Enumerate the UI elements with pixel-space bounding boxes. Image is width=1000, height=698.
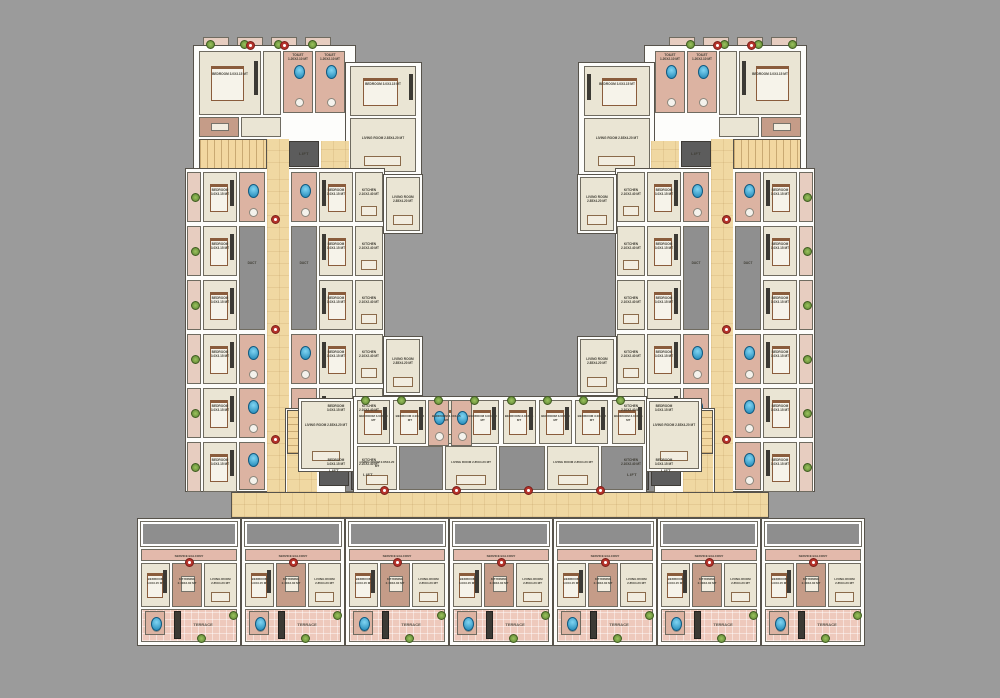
duct-void: DUCT bbox=[291, 226, 317, 330]
roof-cutout bbox=[453, 522, 549, 546]
entry-marker bbox=[246, 41, 255, 50]
entry-marker bbox=[747, 41, 756, 50]
bottom-row-unit: SERVICE BALCONY BEDROOM 3.0X3.15 MT KIT/… bbox=[345, 518, 449, 646]
roof-cutout bbox=[765, 522, 861, 546]
room-bedroom: BEDROOM 3.0X3.15 MT bbox=[647, 280, 681, 330]
room-living: LIVING ROOM 2.85X4.20 MT bbox=[412, 563, 445, 607]
room-bedroom: BEDROOM 3.0X3.15 MT bbox=[763, 280, 797, 330]
room-living: LIVING ROOM 2.85X4.20 MT bbox=[308, 563, 341, 607]
room-bedroom: BEDROOM 3.0X3.15 MT bbox=[319, 334, 353, 384]
bottom-row: SERVICE BALCONY BEDROOM 3.0X3.15 MT KIT/… bbox=[137, 518, 865, 646]
room-living: LIVING ROOM 2.85X4.20 MT bbox=[828, 563, 861, 607]
room-kitchen-living: KITCHEN 2.10X2.40 MT bbox=[617, 172, 645, 222]
room-living: LIVING ROOM 2.85X4.20 MT bbox=[386, 177, 420, 231]
toilet bbox=[735, 442, 761, 490]
plant-icon bbox=[749, 611, 758, 620]
toilet bbox=[353, 611, 373, 635]
room-kitchen-dining: KIT/DINING 2.40X3.30 MT bbox=[380, 563, 410, 607]
plant-icon bbox=[191, 355, 200, 364]
room-bedroom: BEDROOM 3.0X3.15 MT bbox=[763, 172, 797, 222]
room-kitchen bbox=[761, 117, 801, 137]
room-kitchen-dining: KIT/DINING 2.40X3.30 MT bbox=[588, 563, 618, 607]
room-bedroom: BEDROOM 3.0X3.15 MT bbox=[647, 172, 681, 222]
room-kitchen bbox=[199, 117, 239, 137]
entry-marker bbox=[722, 435, 731, 444]
room-bedroom: BEDROOM 3.0X3.15 MT bbox=[612, 400, 645, 444]
plant-icon bbox=[543, 396, 552, 405]
toilet bbox=[451, 400, 472, 446]
room-bedroom: BEDROOM 3.0X3.15 MT bbox=[765, 563, 794, 607]
balcony bbox=[187, 172, 201, 222]
entry-marker bbox=[722, 325, 731, 334]
plant-icon bbox=[191, 193, 200, 202]
room-bedroom: BEDROOM 3.0X3.15 MT bbox=[203, 172, 237, 222]
kitchen-counter bbox=[382, 611, 389, 639]
entry-marker bbox=[705, 558, 714, 567]
bottom-row-unit: SERVICE BALCONY BEDROOM 3.0X3.15 MT KIT/… bbox=[761, 518, 865, 646]
room-bedroom: BEDROOM 3.0X3.15 MT bbox=[203, 442, 237, 492]
plant-icon bbox=[803, 247, 812, 256]
roof-cutout bbox=[557, 522, 653, 546]
room-kitchen-living: KITCHEN 2.10X2.40 MT bbox=[617, 226, 645, 276]
room-bedroom: BEDROOM 3.0X3.15 MT bbox=[647, 334, 681, 384]
entry-marker bbox=[596, 486, 605, 495]
duct-void: DUCT bbox=[239, 226, 265, 330]
room bbox=[241, 117, 281, 137]
plant-icon bbox=[437, 611, 446, 620]
room-bedroom: BEDROOM 3.0X3.15 MT bbox=[141, 563, 170, 607]
plant-icon bbox=[803, 193, 812, 202]
kitchen-counter bbox=[486, 611, 493, 639]
entry-marker bbox=[380, 486, 389, 495]
room-kitchen-living: KITCHEN 2.10X2.40 MT bbox=[355, 172, 383, 222]
toilet: TOILET 1.20X2.10 MT bbox=[655, 51, 685, 113]
plant-icon bbox=[308, 40, 317, 49]
room-bedroom: BEDROOM 3.0X3.15 MT bbox=[575, 400, 608, 444]
plant-icon bbox=[616, 396, 625, 405]
plant-icon bbox=[191, 409, 200, 418]
plant-icon bbox=[434, 396, 443, 405]
plant-icon bbox=[301, 634, 310, 643]
plant-icon bbox=[229, 611, 238, 620]
plant-icon bbox=[197, 634, 206, 643]
roof-cutout bbox=[141, 522, 237, 546]
plant-icon bbox=[361, 396, 370, 405]
kitchen-counter bbox=[798, 611, 805, 639]
toilet bbox=[239, 442, 265, 490]
duct-void bbox=[499, 446, 545, 490]
toilet bbox=[561, 611, 581, 635]
plant-icon bbox=[803, 409, 812, 418]
room-kitchen-dining: KIT/DINING 2.40X3.30 MT bbox=[692, 563, 722, 607]
room-kitchen-dining: KIT/DINING 2.40X3.30 MT bbox=[484, 563, 514, 607]
room-bedroom: BEDROOM 3.0X3.15 MT bbox=[357, 400, 390, 444]
balcony bbox=[187, 280, 201, 330]
room-bedroom: BEDROOM 3.0X3.15 MT bbox=[763, 388, 797, 438]
bottom-row-unit: SERVICE BALCONY BEDROOM 3.0X3.15 MT KIT/… bbox=[449, 518, 553, 646]
duct-void bbox=[399, 446, 443, 490]
entry-marker bbox=[289, 558, 298, 567]
floor-plan-canvas: BEDROOM 3.0X3.15 MT TOILET 1.20X2.10 MT … bbox=[0, 0, 1000, 698]
toilet bbox=[428, 400, 449, 446]
room-bedroom: BEDROOM 3.0X3.15 MT bbox=[203, 388, 237, 438]
room-bedroom: BEDROOM 3.0X3.15 MT bbox=[739, 51, 801, 115]
entry-marker bbox=[722, 215, 731, 224]
room-bedroom: BEDROOM 3.0X3.15 MT bbox=[203, 334, 237, 384]
plant-icon bbox=[191, 301, 200, 310]
entry-marker bbox=[271, 435, 280, 444]
toilet: TOILET 1.20X2.10 MT bbox=[687, 51, 717, 113]
room-bedroom: BEDROOM 3.0X3.15 MT bbox=[584, 66, 650, 116]
plant-icon bbox=[803, 355, 812, 364]
entry-marker bbox=[452, 486, 461, 495]
room-living: LIVING ROOM 2.85X4.20 MT bbox=[516, 563, 549, 607]
room-bedroom: BEDROOM 3.0X3.15 MT bbox=[763, 442, 797, 492]
room-kitchen-living: KITCHEN 2.10X2.40 MT bbox=[355, 226, 383, 276]
room-bedroom: BEDROOM 3.0X3.15 MT bbox=[203, 226, 237, 276]
room-bedroom: BEDROOM 3.0X3.15 MT bbox=[661, 563, 690, 607]
room-living: LIVING ROOM 2.85X4.20 MT bbox=[357, 446, 397, 490]
room-living: LIVING ROOM 2.85X4.20 MT bbox=[580, 177, 614, 231]
plant-icon bbox=[507, 396, 516, 405]
balcony bbox=[187, 442, 201, 492]
room-living: LIVING ROOM 2.85X4.20 MT bbox=[547, 446, 599, 490]
balcony bbox=[799, 226, 813, 276]
entry-marker bbox=[601, 558, 610, 567]
roof-cutout bbox=[349, 522, 445, 546]
toilet bbox=[683, 334, 709, 384]
room-bedroom: BEDROOM 3.0X3.15 MT bbox=[539, 400, 572, 444]
room-passage bbox=[719, 51, 737, 115]
room-living: LIVING ROOM 2.85X4.20 MT bbox=[580, 339, 614, 393]
room-bedroom: BEDROOM 3.0X3.15 MT bbox=[203, 280, 237, 330]
toilet bbox=[457, 611, 477, 635]
room-bedroom: BEDROOM 3.0X3.15 MT bbox=[319, 172, 353, 222]
toilet bbox=[291, 334, 317, 384]
entry-marker bbox=[524, 486, 533, 495]
toilet bbox=[769, 611, 789, 635]
plant-icon bbox=[613, 634, 622, 643]
toilet bbox=[735, 388, 761, 438]
balcony bbox=[799, 388, 813, 438]
room-living: LIVING ROOM 2.85X4.20 MT bbox=[649, 401, 699, 469]
balcony bbox=[799, 280, 813, 330]
room-kitchen-dining: KIT/DINING 2.40X3.30 MT bbox=[796, 563, 826, 607]
entry-marker bbox=[280, 41, 289, 50]
toilet: TOILET 1.20X2.10 MT bbox=[283, 51, 313, 113]
entry-marker bbox=[271, 215, 280, 224]
lift-shaft: LIFT bbox=[289, 141, 319, 167]
plant-icon bbox=[206, 40, 215, 49]
kitchen-counter bbox=[694, 611, 701, 639]
balcony bbox=[187, 226, 201, 276]
bottom-row-unit: SERVICE BALCONY BEDROOM 3.0X3.15 MT KIT/… bbox=[137, 518, 241, 646]
kitchen-counter bbox=[590, 611, 597, 639]
plant-icon bbox=[717, 634, 726, 643]
plant-icon bbox=[333, 611, 342, 620]
toilet bbox=[735, 334, 761, 384]
room bbox=[719, 117, 759, 137]
plant-icon bbox=[803, 301, 812, 310]
toilet bbox=[683, 172, 709, 222]
room-kitchen-dining: KIT/DINING 2.40X3.30 MT bbox=[276, 563, 306, 607]
room-bedroom: BEDROOM 3.0X3.15 MT bbox=[199, 51, 261, 115]
room-kitchen-dining: KIT/DINING 2.40X3.30 MT bbox=[172, 563, 202, 607]
roof-cutout bbox=[661, 522, 757, 546]
room-living: LIVING ROOM 2.85X4.20 MT bbox=[620, 563, 653, 607]
lift-shaft: LIFT bbox=[681, 141, 711, 167]
toilet: TOILET 1.20X2.10 MT bbox=[315, 51, 345, 113]
plant-icon bbox=[191, 247, 200, 256]
corridor-main bbox=[231, 492, 769, 518]
entry-marker bbox=[271, 325, 280, 334]
plant-icon bbox=[509, 634, 518, 643]
room-living: LIVING ROOM 2.85X4.20 MT bbox=[204, 563, 237, 607]
plant-icon bbox=[191, 463, 200, 472]
duct-void: DUCT bbox=[683, 226, 709, 330]
entry-marker bbox=[393, 558, 402, 567]
toilet bbox=[239, 388, 265, 438]
plant-icon bbox=[405, 634, 414, 643]
room-bedroom: BEDROOM 3.0X3.15 MT bbox=[647, 226, 681, 276]
bottom-row-unit: SERVICE BALCONY BEDROOM 3.0X3.15 MT KIT/… bbox=[553, 518, 657, 646]
room-living: LIVING ROOM 2.85X4.20 MT bbox=[350, 118, 416, 172]
plant-icon bbox=[686, 40, 695, 49]
entry-marker bbox=[809, 558, 818, 567]
balcony bbox=[799, 442, 813, 492]
room-bedroom: BEDROOM 3.0X3.15 MT bbox=[349, 563, 378, 607]
plant-icon bbox=[541, 611, 550, 620]
room-kitchen-living: KITCHEN 2.10X2.40 MT bbox=[355, 280, 383, 330]
plant-icon bbox=[803, 463, 812, 472]
room-bedroom: BEDROOM 3.0X3.15 MT bbox=[393, 400, 426, 444]
duct-void bbox=[601, 446, 643, 490]
room-bedroom: BEDROOM 3.0X3.15 MT bbox=[763, 334, 797, 384]
room-living: LIVING ROOM 2.85X4.20 MT bbox=[386, 339, 420, 393]
room-living: LIVING ROOM 2.85X4.20 MT bbox=[445, 446, 497, 490]
room-bedroom: BEDROOM 3.0X3.15 MT bbox=[319, 226, 353, 276]
room-bedroom: BEDROOM 3.0X3.15 MT bbox=[319, 280, 353, 330]
room-bedroom: BEDROOM 3.0X3.15 MT bbox=[453, 563, 482, 607]
room-kitchen-living: KITCHEN 2.10X2.40 MT bbox=[617, 280, 645, 330]
room-living: LIVING ROOM 2.85X4.20 MT bbox=[584, 118, 650, 172]
toilet bbox=[291, 172, 317, 222]
room-living: LIVING ROOM 2.85X4.20 MT bbox=[301, 401, 351, 469]
roof-cutout bbox=[245, 522, 341, 546]
toilet bbox=[249, 611, 269, 635]
balcony bbox=[187, 334, 201, 384]
room-bedroom: BEDROOM 3.0X3.15 MT bbox=[763, 226, 797, 276]
toilet bbox=[665, 611, 685, 635]
room-bedroom: BEDROOM 3.0X3.15 MT bbox=[503, 400, 536, 444]
room-bedroom: BEDROOM 3.0X3.15 MT bbox=[557, 563, 586, 607]
balcony bbox=[187, 388, 201, 438]
balcony bbox=[799, 172, 813, 222]
toilet bbox=[239, 334, 265, 384]
room-living: LIVING ROOM 2.85X4.20 MT bbox=[724, 563, 757, 607]
bottom-row-unit: SERVICE BALCONY BEDROOM 3.0X3.15 MT KIT/… bbox=[657, 518, 761, 646]
room-kitchen-living: KITCHEN 2.10X2.40 MT bbox=[355, 334, 383, 384]
room-bedroom: BEDROOM 3.0X3.15 MT bbox=[245, 563, 274, 607]
room-kitchen-living: KITCHEN 2.10X2.40 MT bbox=[617, 334, 645, 384]
entry-marker bbox=[713, 41, 722, 50]
toilet bbox=[735, 172, 761, 222]
room-bedroom: BEDROOM 3.0X3.15 MT bbox=[350, 66, 416, 116]
entry-marker bbox=[497, 558, 506, 567]
plant-icon bbox=[788, 40, 797, 49]
duct-void: DUCT bbox=[735, 226, 761, 330]
plant-icon bbox=[645, 611, 654, 620]
toilet bbox=[239, 172, 265, 222]
plant-icon bbox=[853, 611, 862, 620]
plant-icon bbox=[821, 634, 830, 643]
balcony bbox=[799, 334, 813, 384]
kitchen-counter bbox=[278, 611, 285, 639]
toilet bbox=[145, 611, 165, 635]
room-passage bbox=[263, 51, 281, 115]
kitchen-counter bbox=[174, 611, 181, 639]
bottom-row-unit: SERVICE BALCONY BEDROOM 3.0X3.15 MT KIT/… bbox=[241, 518, 345, 646]
entry-marker bbox=[185, 558, 194, 567]
